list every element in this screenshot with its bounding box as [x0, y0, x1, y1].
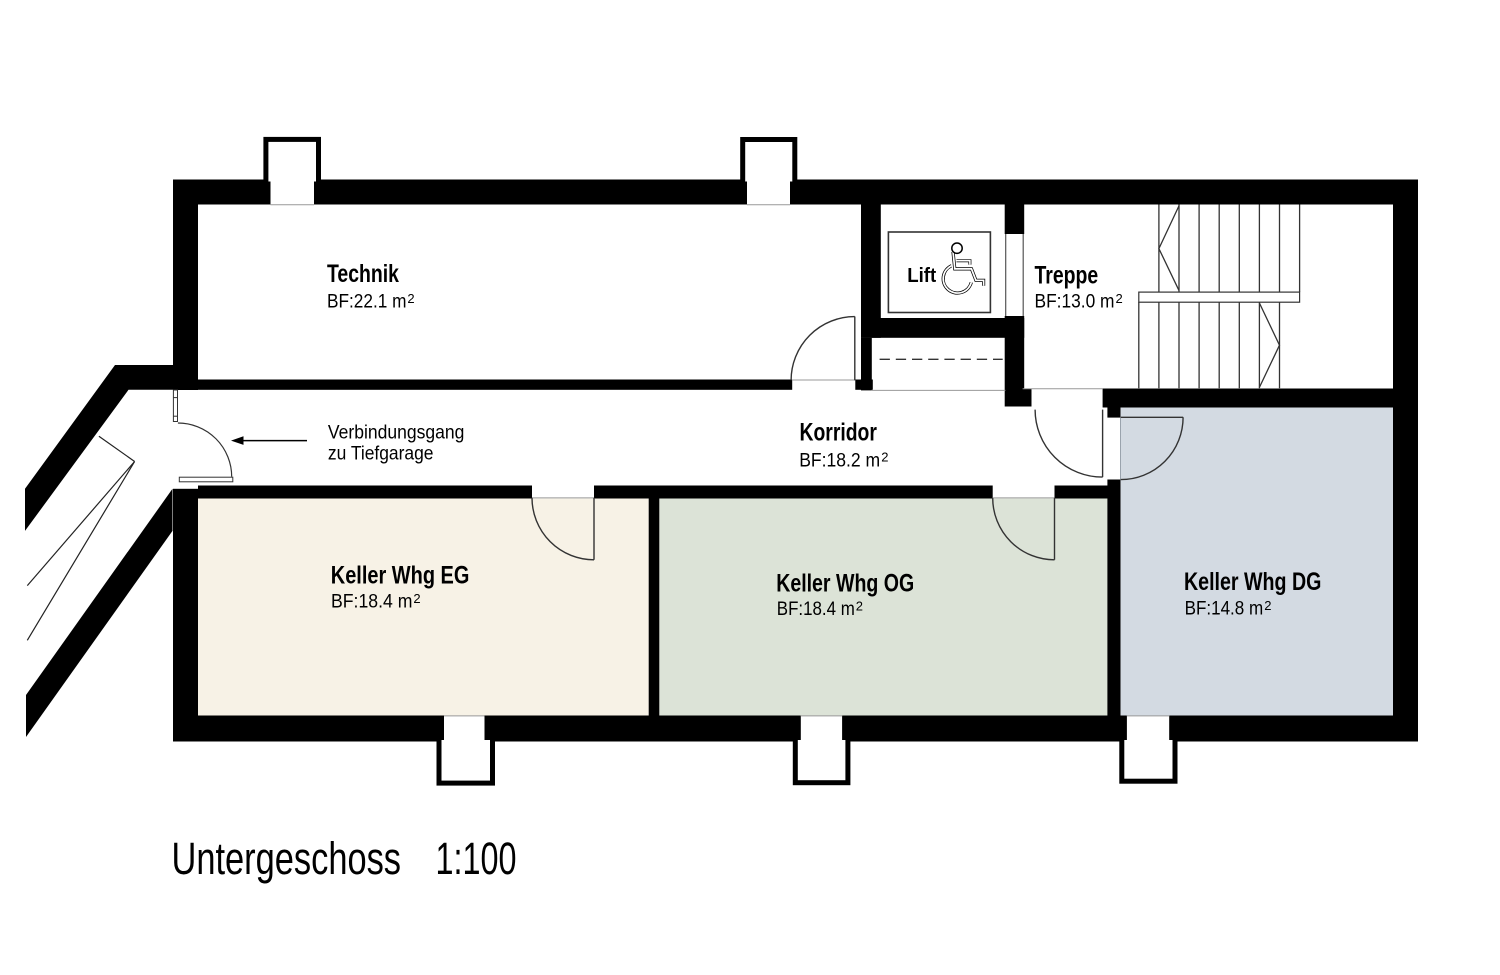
- svg-text:2: 2: [856, 598, 863, 613]
- svg-text:BF:18.4 m: BF:18.4 m: [777, 599, 855, 620]
- svg-text:Technik: Technik: [327, 260, 399, 288]
- svg-text:Treppe: Treppe: [1035, 261, 1099, 289]
- svg-text:BF:18.4 m: BF:18.4 m: [331, 591, 412, 612]
- svg-text:Keller Whg DG: Keller Whg DG: [1184, 568, 1321, 596]
- svg-text:1:100: 1:100: [436, 833, 517, 884]
- svg-text:2: 2: [1264, 598, 1271, 613]
- svg-text:Korridor: Korridor: [800, 419, 878, 447]
- svg-text:BF:18.2 m: BF:18.2 m: [799, 450, 880, 471]
- svg-text:BF:14.8 m: BF:14.8 m: [1185, 598, 1264, 619]
- svg-text:2: 2: [881, 450, 888, 465]
- svg-text:Lift: Lift: [907, 265, 936, 287]
- svg-text:2: 2: [1116, 291, 1123, 306]
- svg-text:Keller Whg EG: Keller Whg EG: [331, 562, 470, 590]
- svg-text:Keller Whg OG: Keller Whg OG: [776, 570, 914, 598]
- svg-text:2: 2: [413, 591, 420, 606]
- svg-text:2: 2: [407, 291, 414, 306]
- svg-text:BF:13.0 m: BF:13.0 m: [1035, 292, 1115, 313]
- svg-text:Untergeschoss: Untergeschoss: [172, 833, 402, 884]
- svg-text:zu Tiefgarage: zu Tiefgarage: [328, 444, 434, 465]
- svg-text:BF:22.1 m: BF:22.1 m: [327, 292, 407, 313]
- svg-text:Verbindungsgang: Verbindungsgang: [328, 423, 465, 444]
